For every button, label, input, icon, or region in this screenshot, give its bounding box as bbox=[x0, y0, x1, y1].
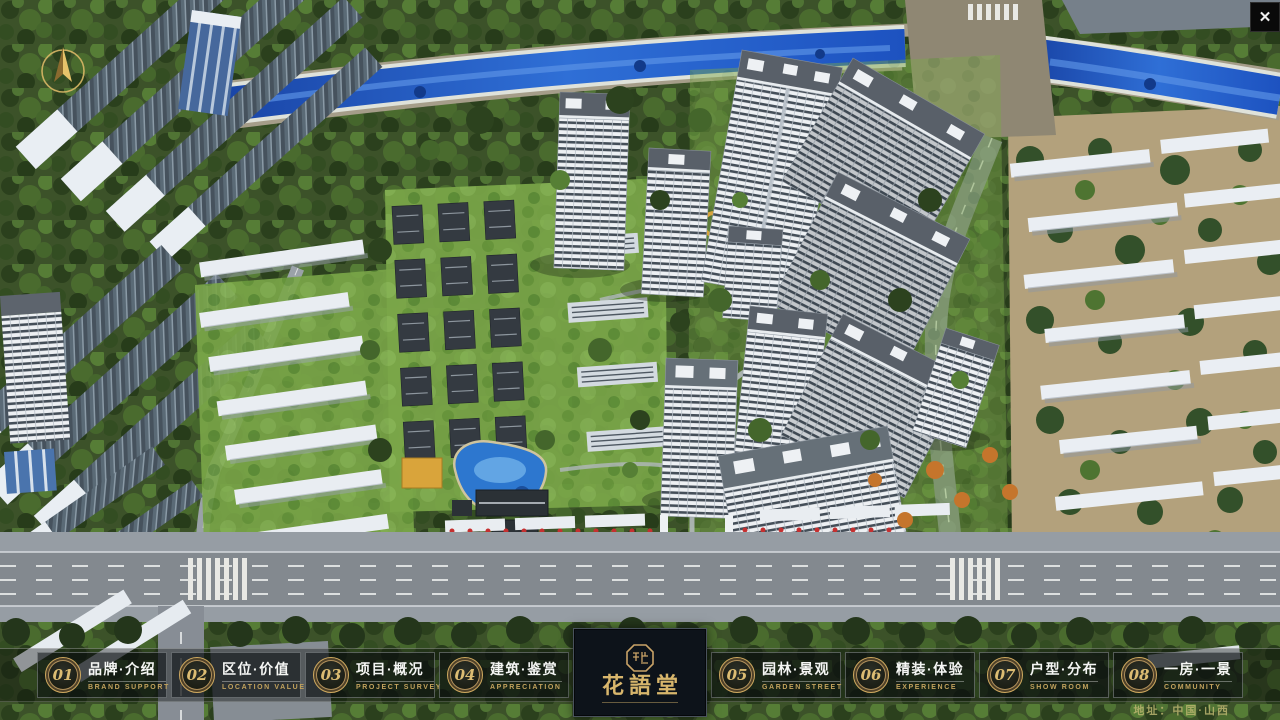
nav-sublabel: APPRECIATION bbox=[490, 681, 562, 691]
west-rowhouses bbox=[192, 239, 415, 575]
nav-badge-04: 04 bbox=[447, 657, 483, 693]
nav-label: 精装·体验 bbox=[896, 659, 964, 679]
nav-badge-06: 06 bbox=[853, 657, 889, 693]
nav-sublabel: EXPERIENCE bbox=[896, 681, 964, 691]
nav-label: 建筑·鉴赏 bbox=[490, 659, 562, 679]
logo-divider bbox=[602, 702, 678, 703]
nav-badge-03: 03 bbox=[313, 657, 349, 693]
nav-item-floorplan[interactable]: 07 户型·分布 SHOW ROOM bbox=[979, 652, 1109, 698]
nav-badge-08: 08 bbox=[1121, 657, 1157, 693]
nav-label: 项目·概况 bbox=[356, 659, 434, 679]
nav-item-location[interactable]: 02 区位·价值 LOCATION VALUE bbox=[171, 652, 301, 698]
close-icon: ✕ bbox=[1259, 8, 1272, 26]
nav-sublabel: BRAND SUPPORT bbox=[88, 681, 166, 691]
nav-sublabel: LOCATION VALUE bbox=[222, 681, 300, 691]
logo-panel[interactable]: 花語堂 bbox=[573, 628, 707, 717]
nav-item-community[interactable]: 08 一房·一景 COMMUNITY bbox=[1113, 652, 1243, 698]
nav-badge-02: 02 bbox=[179, 657, 215, 693]
nav-sublabel: SHOW ROOM bbox=[1030, 681, 1098, 691]
nav-item-architecture[interactable]: 04 建筑·鉴赏 APPRECIATION bbox=[439, 652, 569, 698]
nav-badge-05: 05 bbox=[719, 657, 755, 693]
nav-item-project[interactable]: 03 项目·概况 PROJECT SURVEY bbox=[305, 652, 435, 698]
nav-badge-07: 07 bbox=[987, 657, 1023, 693]
nav-sublabel: PROJECT SURVEY bbox=[356, 681, 434, 691]
nav-item-brand[interactable]: 01 品牌·介绍 BRAND SUPPORT bbox=[37, 652, 167, 698]
nav-item-garden[interactable]: 05 园林·景观 GARDEN STREET bbox=[711, 652, 841, 698]
presentation-screen: ✕ 01 品牌·介绍 BRAND SUPPORT 02 区位·价值 LOCATI… bbox=[0, 0, 1280, 720]
compass-icon bbox=[34, 40, 94, 100]
nav-sublabel: GARDEN STREET bbox=[762, 681, 840, 691]
nav-label: 品牌·介绍 bbox=[88, 659, 166, 679]
nav-label: 园林·景观 bbox=[762, 659, 840, 679]
nav-label: 户型·分布 bbox=[1030, 659, 1098, 679]
seal-icon bbox=[625, 643, 655, 673]
address-label: 地址：中国·山西 bbox=[1133, 702, 1230, 718]
logo-title: 花語堂 bbox=[597, 675, 683, 697]
nav-item-experience[interactable]: 06 精装·体验 EXPERIENCE bbox=[845, 652, 975, 698]
nav-label: 一房·一景 bbox=[1164, 659, 1232, 679]
nav-sublabel: COMMUNITY bbox=[1164, 681, 1232, 691]
nav-badge-01: 01 bbox=[45, 657, 81, 693]
masterplan-render bbox=[0, 0, 1280, 720]
nav-label: 区位·价值 bbox=[222, 659, 300, 679]
close-button[interactable]: ✕ bbox=[1250, 2, 1280, 32]
